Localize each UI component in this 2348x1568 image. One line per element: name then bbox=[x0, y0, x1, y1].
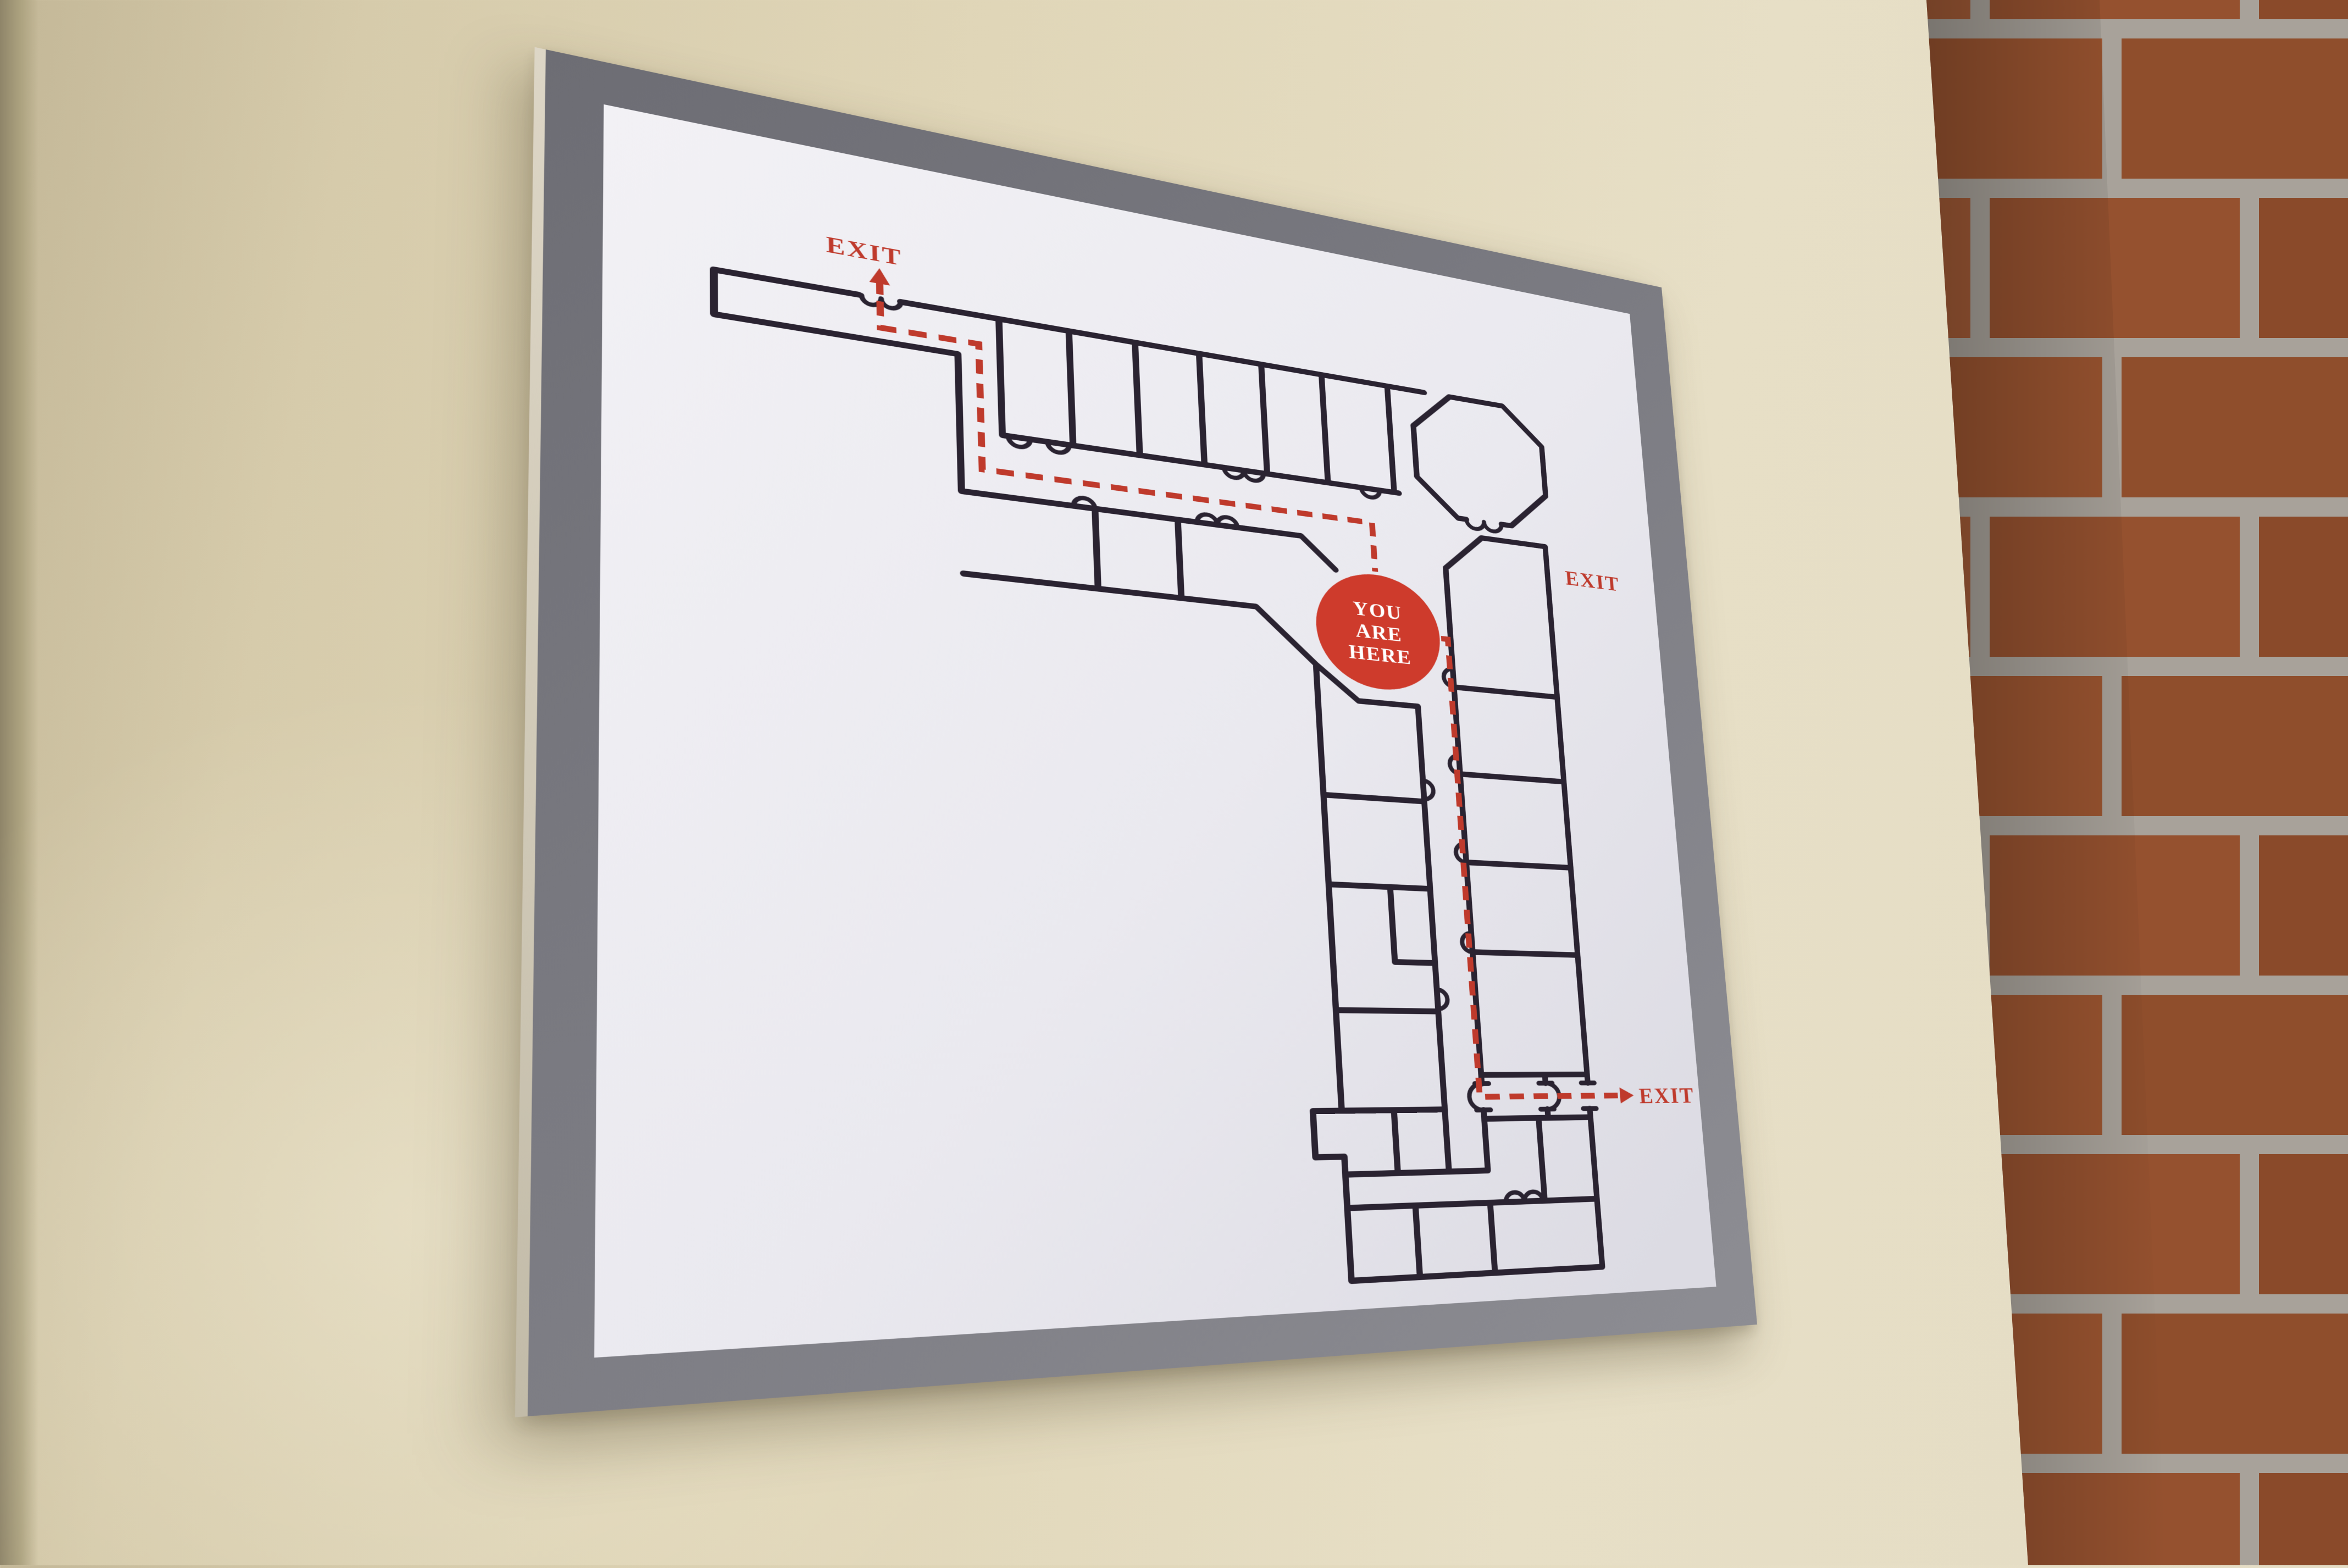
exit-label-bottom-right: EXIT bbox=[1638, 1084, 1695, 1108]
brick-wall bbox=[1869, 0, 2348, 1565]
sign-paper bbox=[594, 104, 1716, 1358]
evacuation-sign-board: EXIT EXIT EXIT YOU ARE HERE bbox=[528, 49, 1757, 1416]
brick-wall-texture bbox=[1869, 0, 2348, 1565]
wall-corner-shade bbox=[0, 0, 38, 1565]
floor-plan-svg: EXIT EXIT EXIT YOU ARE HERE bbox=[528, 49, 1757, 1416]
